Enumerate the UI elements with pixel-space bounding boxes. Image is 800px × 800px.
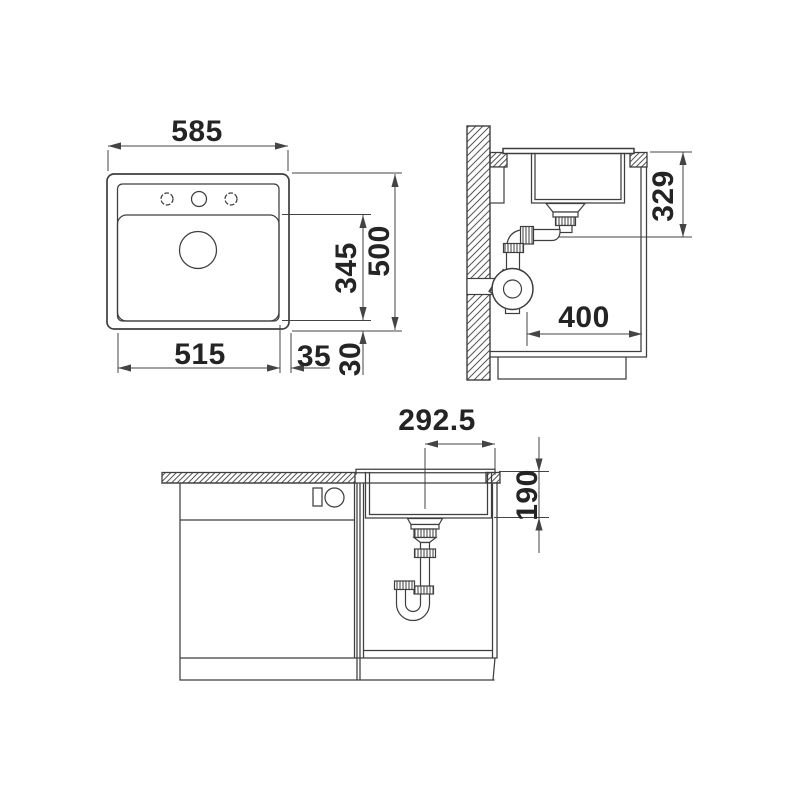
sink-rim-side (503, 149, 634, 154)
faucet-hole-center-icon (192, 192, 207, 207)
dim-label-edge-bottom: 30 (334, 342, 367, 376)
wall-section (467, 126, 490, 380)
appliance-switch (313, 488, 322, 506)
dim-label-width-overall: 585 (171, 115, 223, 148)
sink-outer-edge (107, 174, 289, 329)
countertop-section-left (490, 153, 507, 168)
top-view: 585 515 35 345 500 30 (107, 115, 402, 376)
dim-label-basin-length: 345 (330, 242, 363, 294)
appliance-knob (325, 488, 344, 507)
dim-label-drain-height: 329 (647, 170, 680, 222)
sink-technical-drawing: 585 515 35 345 500 30 (0, 0, 800, 800)
sink-rear-apron (490, 167, 504, 203)
drain-strainer-front (408, 519, 443, 543)
basin-section-front (366, 473, 492, 519)
countertop-section-right (630, 153, 647, 168)
dim-label-drain-offset: 400 (558, 301, 610, 334)
dim-label-basin-depth: 190 (511, 469, 544, 521)
drain-strainer-side (546, 204, 585, 233)
drain-pipes-front (395, 543, 436, 621)
top-view-dimensions: 585 515 35 345 500 30 (108, 115, 402, 376)
cabinet-front (162, 483, 500, 680)
side-view: 329 400 (467, 126, 692, 380)
front-view: 292.5 190 (162, 404, 549, 680)
drain-hole (180, 232, 217, 269)
drawing-canvas: 585 515 35 345 500 30 (0, 0, 800, 800)
sink-rim-edge (118, 184, 280, 321)
dim-label-edge-right: 35 (297, 340, 331, 373)
dim-label-depth-overall: 500 (363, 225, 396, 277)
dim-label-drain-center-offset: 292.5 (398, 404, 476, 437)
faucet-hole-right-icon (225, 193, 237, 205)
side-view-dimensions: 329 400 (527, 152, 692, 346)
basin-section-side (532, 154, 625, 204)
faucet-hole-left-icon (161, 193, 173, 205)
countertop-front-left (162, 473, 355, 484)
faucet-holes (161, 192, 237, 207)
dim-label-basin-width: 515 (174, 338, 226, 371)
